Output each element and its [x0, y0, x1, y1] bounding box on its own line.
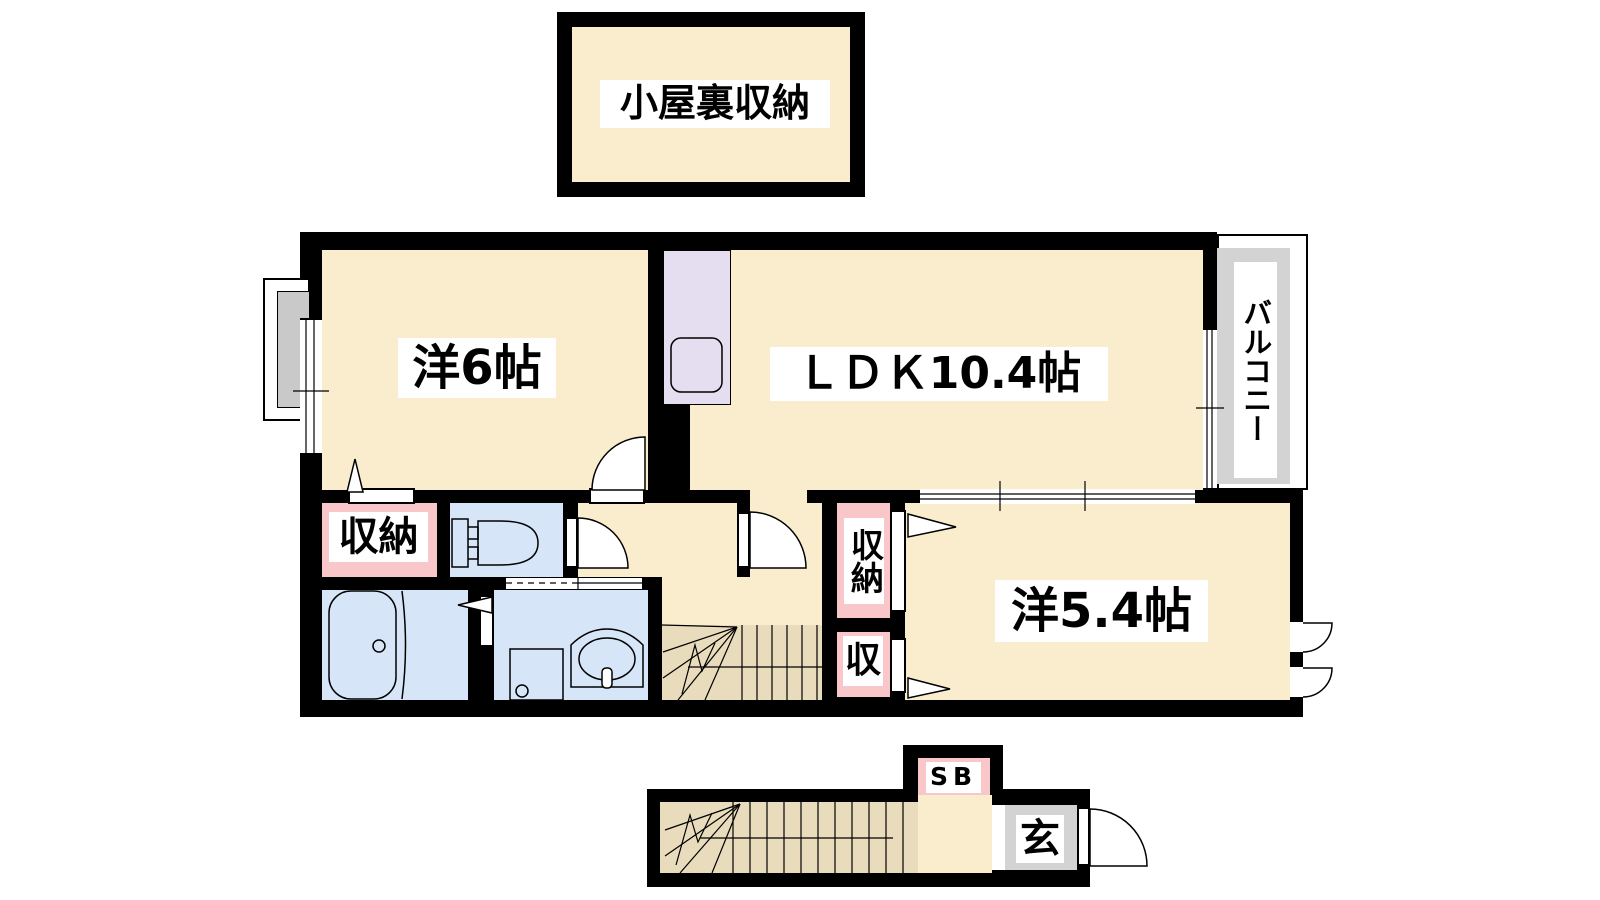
balcony-window — [1203, 330, 1217, 488]
ldk-door-stub-top — [737, 503, 750, 512]
ldk-opening — [750, 490, 807, 503]
balcony-label: バルコニー — [1234, 262, 1277, 478]
hallway — [578, 503, 737, 577]
entry-hall — [918, 795, 992, 873]
partition-window — [920, 489, 1195, 504]
casement-window-2 — [1290, 667, 1303, 697]
bathroom-door-leaf — [479, 595, 494, 647]
closet-lower-door — [890, 638, 906, 693]
bathroom — [322, 590, 468, 700]
western6-label: 洋6帖 — [398, 338, 556, 398]
attic-label: 小屋裏収納 — [600, 80, 830, 128]
ldk-label: ＬＤＫ10.4帖 — [770, 347, 1108, 401]
western54-label: 洋5.4帖 — [995, 580, 1208, 642]
front-door-leaf — [1077, 807, 1090, 866]
stairs-1f — [660, 802, 918, 873]
closet-upper-label: 収納 — [844, 518, 884, 604]
casement-1-arc — [1303, 623, 1332, 652]
floorplan-canvas: 小屋裏収納 洋6帖 ＬＤＫ10.4帖 バルコニー 収納 収納 収 洋5.4帖 S… — [0, 0, 1600, 900]
storage-west-door — [348, 488, 415, 504]
washroom-sliding-door — [505, 577, 643, 590]
stair-hall — [662, 577, 822, 625]
stair-landing — [750, 503, 822, 577]
ldk-door-stub-bottom — [737, 568, 750, 577]
casement-2-arc — [1303, 668, 1332, 697]
closet-lower-label: 収 — [843, 636, 883, 686]
western6-door-leaf — [589, 488, 645, 504]
entrance-step — [992, 805, 1005, 870]
entrance-label: 玄 — [1016, 815, 1064, 863]
kitchen-counter — [663, 250, 731, 405]
stairs-2f — [662, 625, 822, 700]
front-door-arc — [1090, 809, 1147, 866]
toilet-room — [450, 503, 563, 577]
ldk-door-leaf — [737, 512, 750, 568]
closet-upper-door — [890, 510, 906, 612]
storage-west-label: 収納 — [329, 512, 428, 562]
washroom — [494, 590, 648, 700]
wall-below-kitchen — [663, 405, 690, 490]
toilet-door-leaf — [565, 517, 578, 568]
west-window — [300, 318, 322, 455]
casement-window-1 — [1290, 622, 1303, 652]
shoebox-label: SB — [926, 762, 981, 793]
